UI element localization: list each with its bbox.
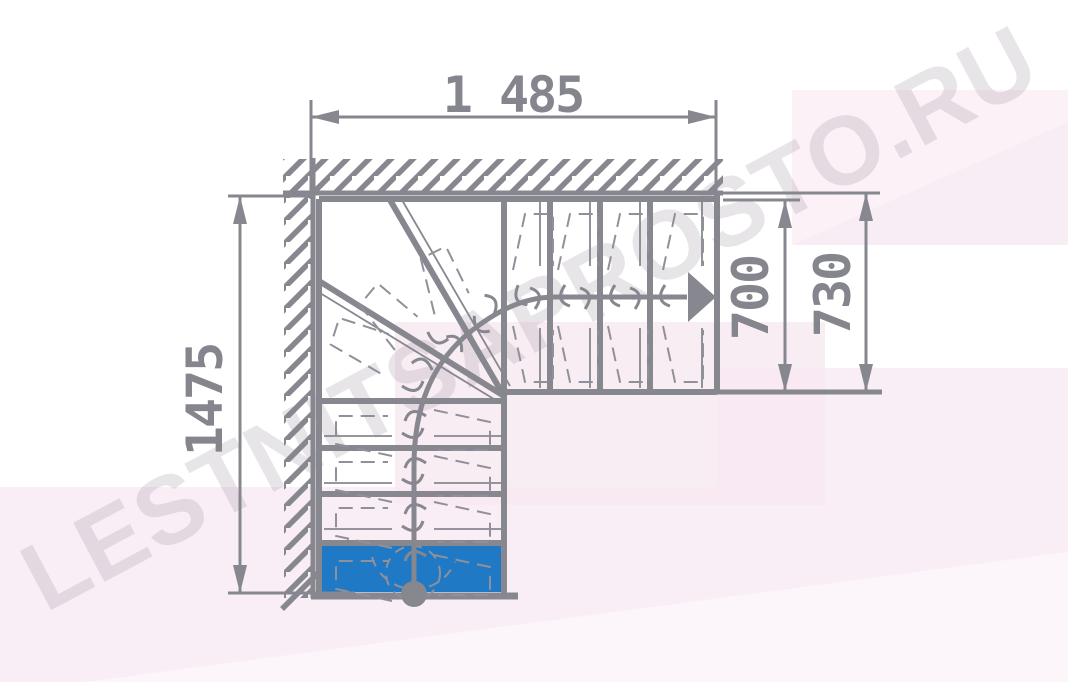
dim-total-width-label: 1 485 [443,66,584,124]
stair-plan-svg: 1 485 1475 700 730 [0,0,1068,682]
dim-flight-outer-width-label: 730 [804,253,862,337]
stair-risers [319,199,650,543]
walking-line-start-dot [401,581,427,607]
stair-plan-drawing: LESTNITSAPROSTO.RU [0,0,1068,682]
walking-line-arrow [688,272,716,322]
dimension-total-depth: 1475 [176,196,355,593]
stair-outline [283,158,882,598]
dim-flight-clear-width-label: 700 [722,256,780,340]
winder-riser-diagonal-2 [319,281,504,396]
dimension-flight-widths: 700 730 [722,193,880,392]
winder-riser-diagonal-1 [390,200,504,396]
dim-total-depth-label: 1475 [176,344,234,456]
tread-nosing-lines [324,202,702,529]
